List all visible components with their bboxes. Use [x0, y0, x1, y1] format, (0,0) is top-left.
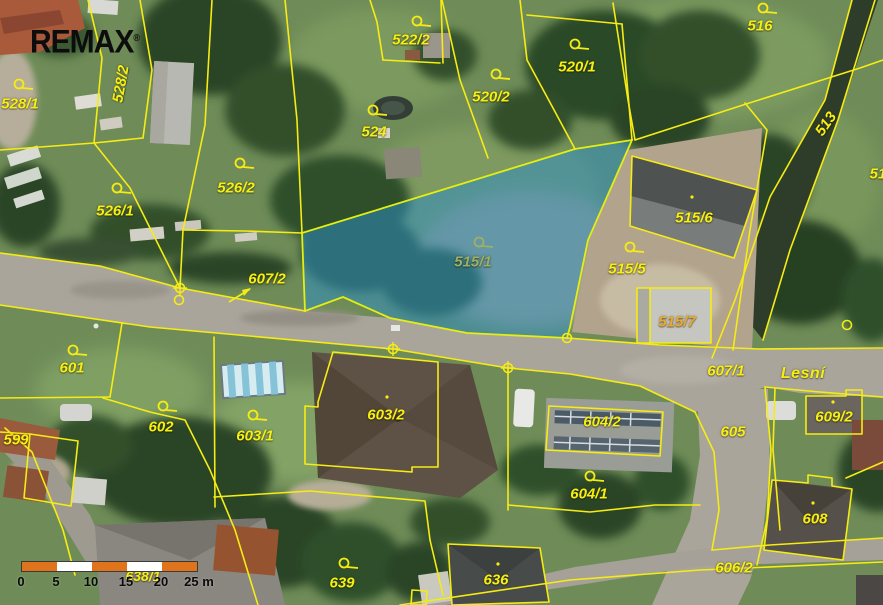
label-flag-icon	[578, 48, 589, 49]
building-center-dot	[690, 195, 693, 198]
scale-tick: 5	[52, 574, 59, 589]
registered-mark-icon: ®	[133, 32, 140, 43]
scale-segment	[22, 562, 57, 571]
scale-segment	[127, 562, 162, 571]
label-flag-icon	[482, 246, 493, 247]
label-flag-icon	[499, 78, 510, 79]
survey-point-icon	[175, 296, 184, 305]
label-flag-icon	[420, 25, 431, 26]
label-flag-icon	[593, 480, 604, 481]
label-flag-icon	[76, 354, 87, 355]
map-symbols	[0, 0, 883, 605]
scale-tick: 0	[17, 574, 24, 589]
building-center-dot	[385, 395, 388, 398]
label-flag-icon	[256, 419, 267, 420]
survey-point-icon	[563, 334, 572, 343]
scale-segment	[57, 562, 92, 571]
scale-bar-segments	[21, 561, 198, 572]
building-center-dot	[831, 400, 834, 403]
label-flag-icon	[120, 192, 131, 193]
label-flag-icon	[766, 12, 777, 13]
survey-point-icon	[843, 321, 852, 330]
remax-logo: REMAX®	[30, 25, 140, 62]
map-viewport[interactable]: 528/1528/2526/1526/2522/2524520/2520/151…	[0, 0, 883, 605]
label-flag-icon	[22, 88, 33, 89]
logo-text: REMAX	[30, 25, 133, 61]
building-center-dot	[496, 562, 499, 565]
scale-bar-ticks: 0510152025 m	[21, 574, 198, 590]
annotation-arrow-head-icon	[242, 288, 251, 296]
building-center-dot	[811, 501, 814, 504]
scale-tick: 25 m	[184, 574, 214, 589]
scale-segment	[162, 562, 197, 571]
label-flag-icon	[376, 114, 387, 115]
scale-tick: 10	[84, 574, 98, 589]
label-flag-icon	[347, 567, 358, 568]
label-flag-icon	[243, 167, 254, 168]
scale-segment	[92, 562, 127, 571]
label-flag-icon	[166, 410, 177, 411]
label-flag-icon	[633, 251, 644, 252]
scale-bar: 0510152025 m	[21, 561, 198, 590]
scale-tick: 15	[119, 574, 133, 589]
scale-tick: 20	[154, 574, 168, 589]
